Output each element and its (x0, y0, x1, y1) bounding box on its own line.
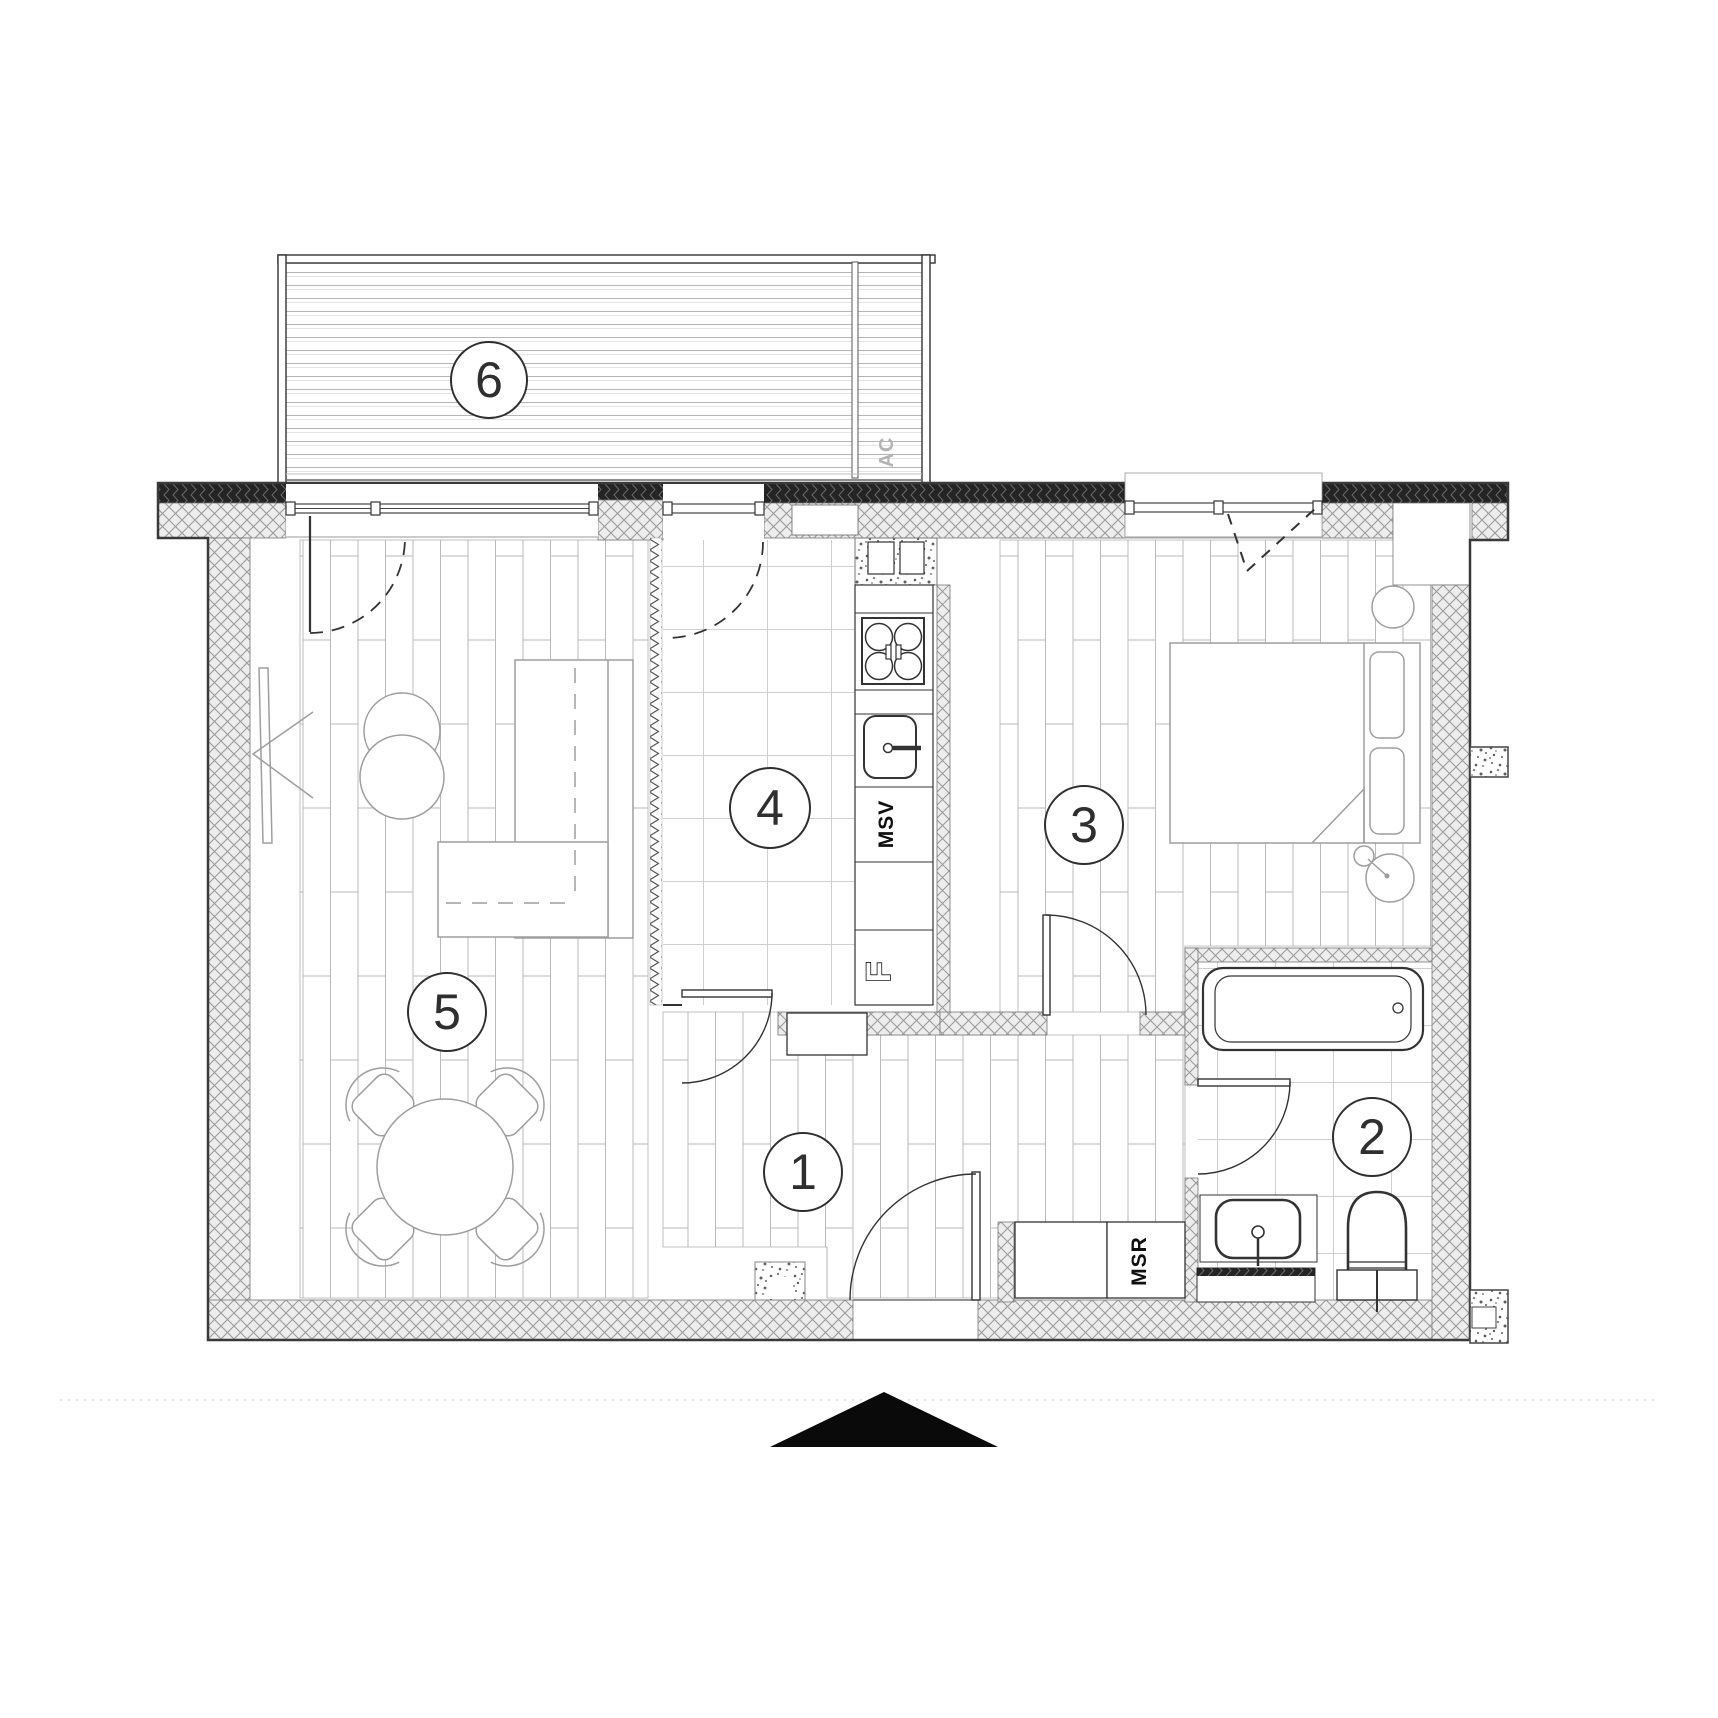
window-post (1125, 501, 1134, 514)
room-tag-bedroom: 3 (1045, 786, 1123, 864)
wall-bathroom-left-upper (1185, 948, 1198, 1085)
bathtub-drain (1393, 1003, 1403, 1013)
balcony: AC (278, 255, 935, 483)
fridge-symbol: F (860, 962, 898, 983)
shaft-box-2 (900, 542, 924, 574)
wall-bedroom-hall-a (940, 1012, 1047, 1035)
room-number-2: 2 (1358, 1109, 1386, 1165)
pillow-2 (1370, 748, 1404, 834)
window-post (663, 502, 672, 515)
wall-top-b (598, 500, 663, 540)
wall-vent-niche (792, 505, 858, 535)
hall-wardrobe (1015, 1222, 1107, 1298)
shaft-box-1 (868, 542, 894, 574)
window-post (755, 502, 764, 515)
pillow-1 (1370, 652, 1404, 738)
room-tag-bathroom: 2 (1333, 1098, 1411, 1176)
floor-plan-page: AC (0, 0, 1718, 1718)
bathtub-inner (1215, 976, 1411, 1042)
wall-bottom-left (208, 1300, 853, 1340)
msv-label: MSV (875, 800, 898, 849)
room-number-1: 1 (789, 1144, 817, 1200)
dining-table (377, 1099, 513, 1235)
wall-stub-hall (998, 1222, 1014, 1302)
nightstand (1372, 586, 1414, 628)
wall-notch-top-right (1393, 503, 1470, 585)
kitchen-sink-drain (884, 744, 893, 753)
partition-living-kitchen (650, 538, 662, 1005)
wall-bathroom-left-lower (1185, 1178, 1198, 1302)
floor-plan-drawing: AC (0, 0, 1718, 1718)
stove-center-1 (886, 645, 891, 659)
room-number-5: 5 (433, 984, 461, 1040)
wall-top-weave-a (158, 484, 286, 503)
wall-top-column (1472, 503, 1508, 540)
balcony-wall-right (922, 255, 930, 483)
wall-left (208, 538, 250, 1340)
wall-top-weave-d (1322, 484, 1508, 503)
sofa-chaise-section (438, 842, 608, 937)
wall-right (1432, 585, 1470, 1340)
vanity-cabinet-edge (1197, 1268, 1315, 1276)
shaft (855, 538, 937, 585)
floor-lamp-base (1354, 846, 1374, 866)
window-post (286, 502, 295, 515)
bracket-notch (1472, 1307, 1496, 1328)
tv-panel (259, 668, 272, 843)
door-kitchen-leaf (682, 990, 772, 997)
wall-bedroom-hall-b (1140, 1012, 1185, 1035)
room-tag-living: 5 (408, 973, 486, 1051)
balcony-wall-top (278, 255, 935, 263)
window-post (371, 502, 380, 515)
balcony-decking (286, 262, 922, 478)
room-tag-hallway: 1 (764, 1133, 842, 1211)
room-number-4: 4 (756, 780, 784, 836)
door-entrance-leaf (972, 1172, 980, 1300)
window-post (1313, 501, 1322, 514)
wall-kitchen-bedroom (937, 585, 950, 1035)
kitchen-fixtures: MSV F (855, 585, 933, 1005)
toilet-bowl (1348, 1192, 1406, 1270)
balcony-door-kitchen-glass (672, 504, 756, 513)
bracket-right-upper (1470, 747, 1508, 777)
window-post (589, 502, 598, 515)
ac-enclosure-divider (852, 262, 858, 478)
sink-tap (1252, 1226, 1264, 1238)
stove-center-2 (896, 645, 901, 659)
hall-cabinet (787, 1013, 867, 1055)
door-bedroom-leaf (1043, 915, 1050, 1015)
floor-lamp-bulb (1385, 874, 1390, 879)
wall-top-weave-c (764, 484, 1125, 503)
window-post (1214, 501, 1223, 514)
msr-label: MSR (1128, 1236, 1151, 1286)
wall-bathroom-top (1185, 948, 1432, 962)
door-bathroom-leaf (1198, 1079, 1290, 1086)
armchair-circle-2 (360, 735, 444, 819)
wall-bottom-right (978, 1300, 1470, 1340)
bottom-wall-niche-inner (769, 1277, 793, 1299)
wall-top-d (1322, 503, 1393, 538)
room-number-3: 3 (1070, 797, 1098, 853)
balcony-wall-left (278, 255, 286, 483)
wall-top-a (158, 503, 286, 538)
ac-label: AC (876, 437, 898, 468)
room-number-6: 6 (475, 352, 503, 408)
room-tag-kitchen: 4 (730, 768, 810, 848)
room-tag-balcony: 6 (451, 342, 527, 418)
